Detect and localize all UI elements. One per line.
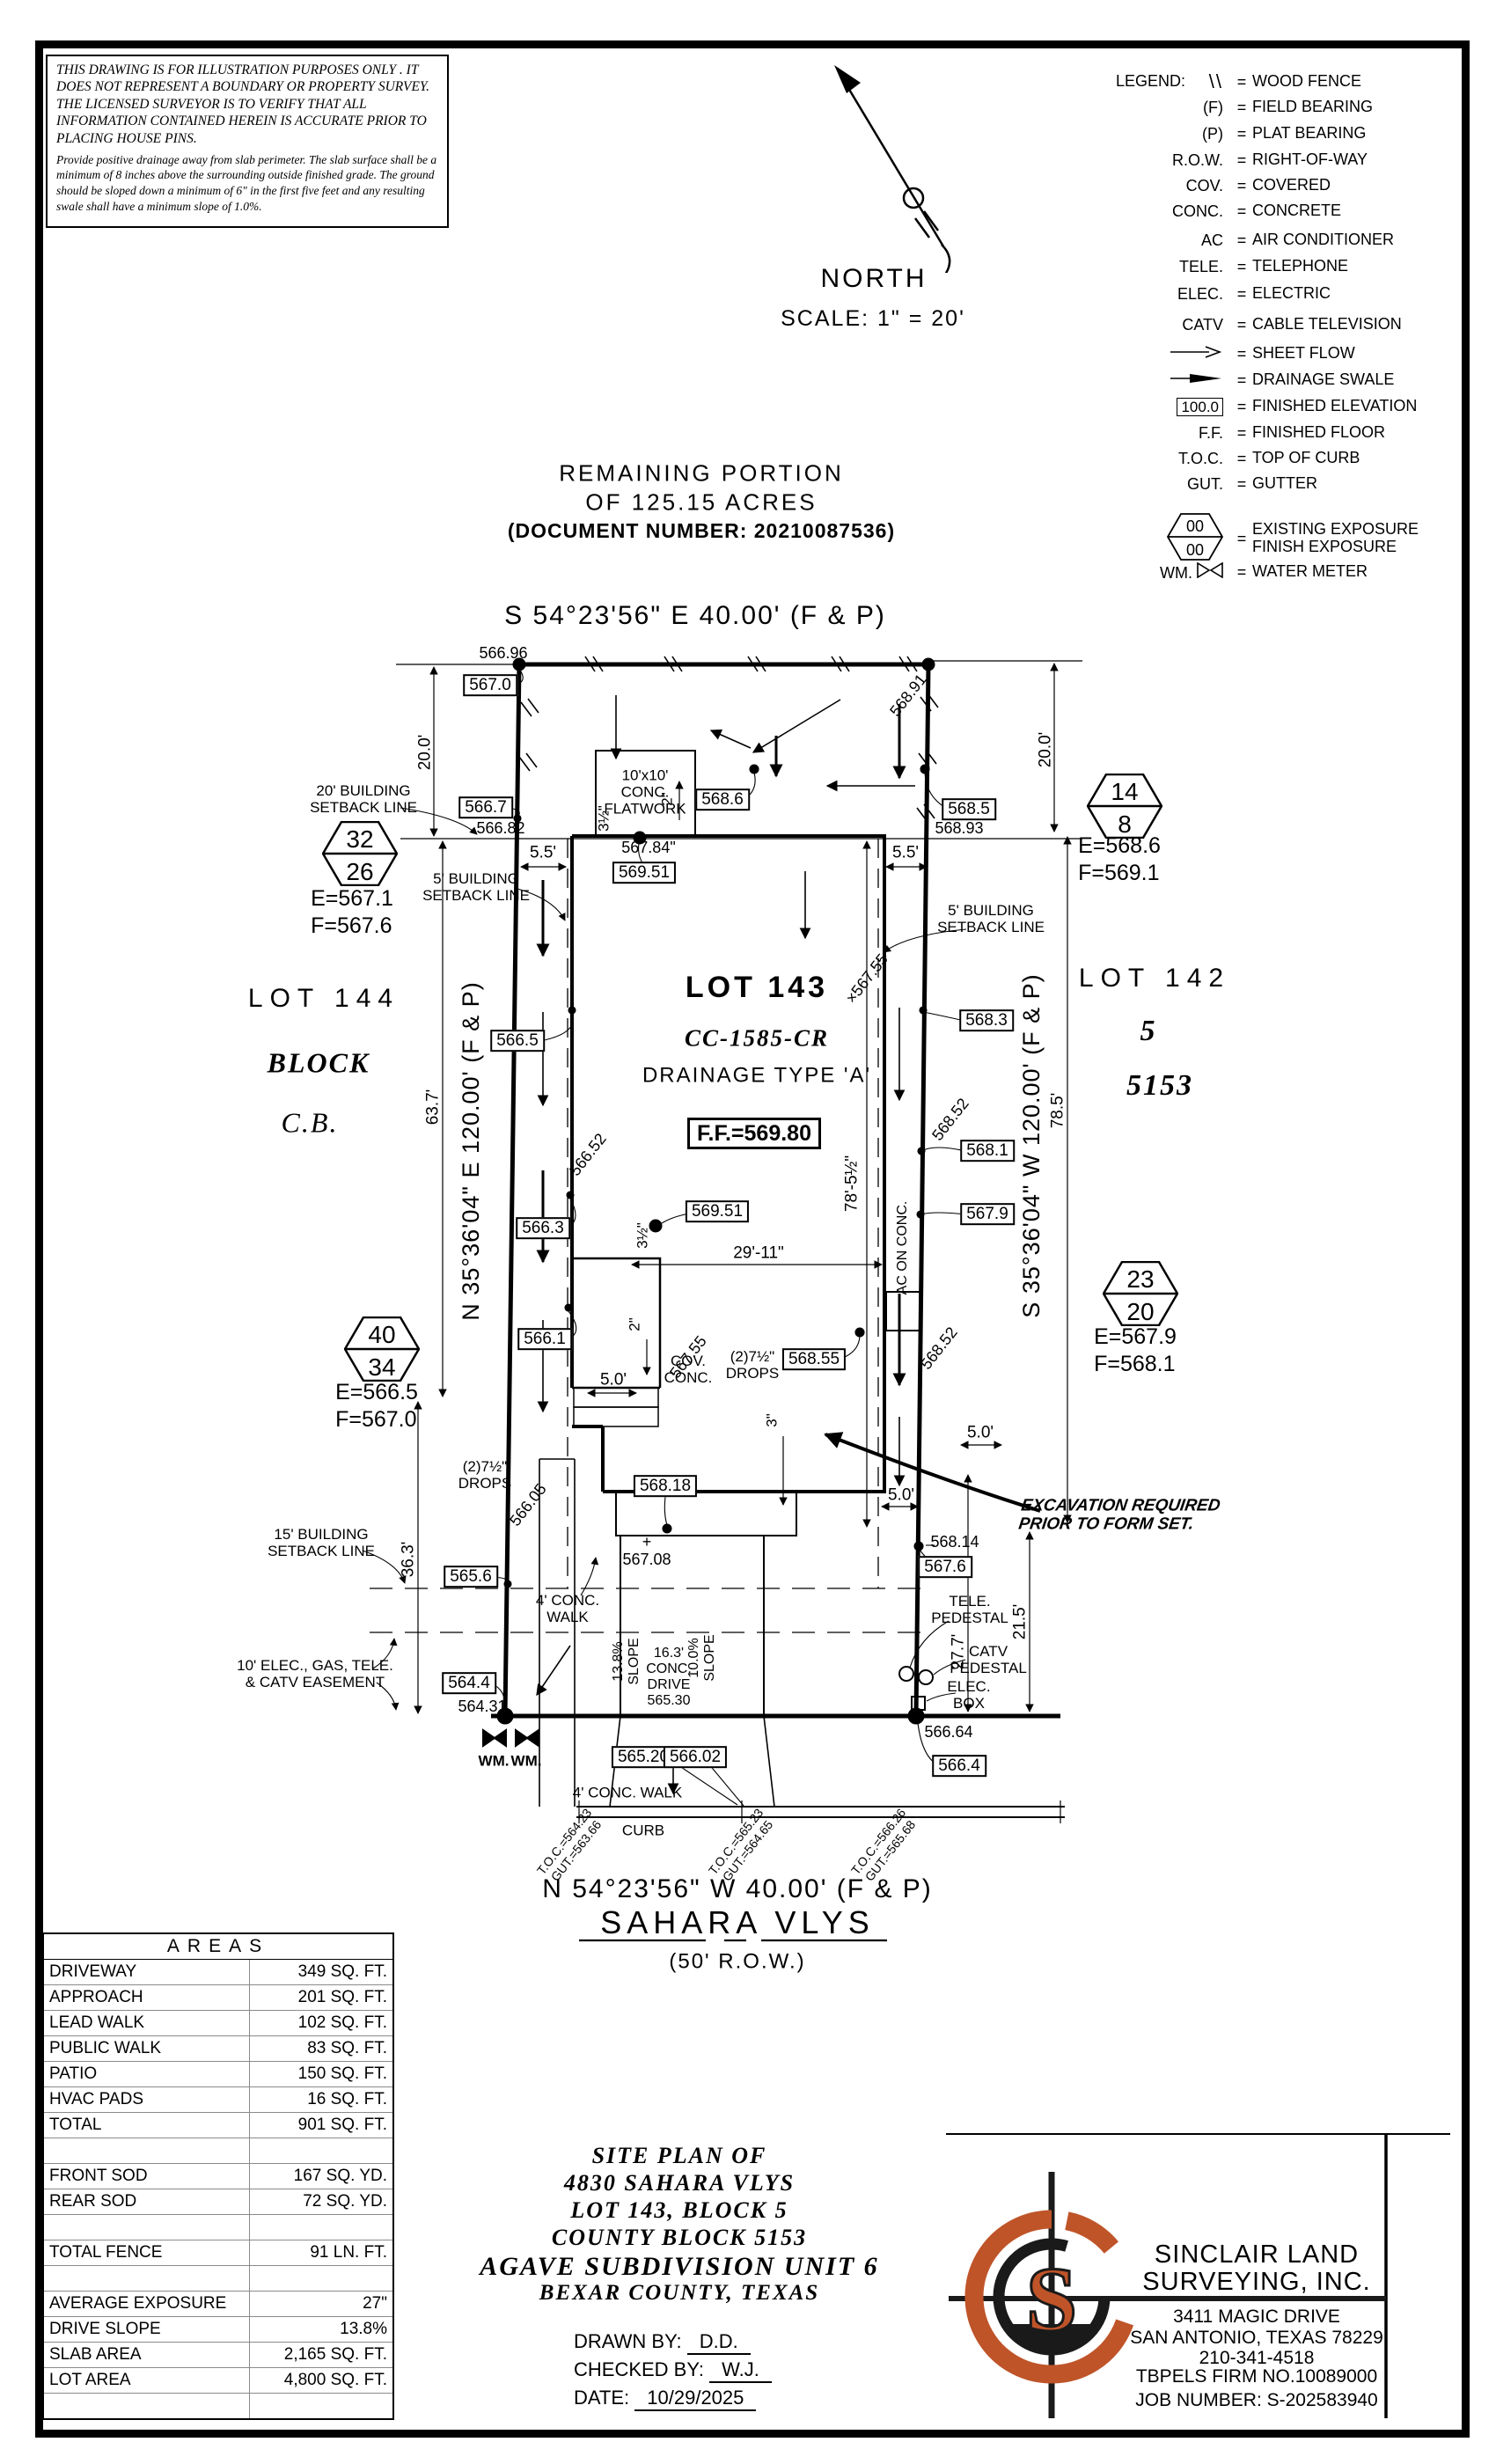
- firm-block-graphics: S: [0, 0, 1496, 2464]
- job-number: JOB NUMBER: S-202583940: [1135, 2390, 1377, 2411]
- firm-name-line1: SINCLAIR LAND: [1155, 2240, 1359, 2269]
- svg-text:S: S: [1026, 2248, 1077, 2350]
- firm-address-line1: 3411 MAGIC DRIVE: [1173, 2306, 1340, 2328]
- site-plan-sheet: THIS DRAWING IS FOR ILLUSTRATION PURPOSE…: [0, 0, 1496, 2464]
- firm-phone: 210-341-4518: [1199, 2348, 1315, 2369]
- firm-tbpels: TBPELS FIRM NO.10089000: [1136, 2366, 1377, 2387]
- firm-name-line2: SURVEYING, INC.: [1142, 2268, 1370, 2296]
- firm-address-line2: SAN ANTONIO, TEXAS 78229: [1130, 2328, 1383, 2349]
- sinclair-logo-icon: S: [974, 2219, 1129, 2374]
